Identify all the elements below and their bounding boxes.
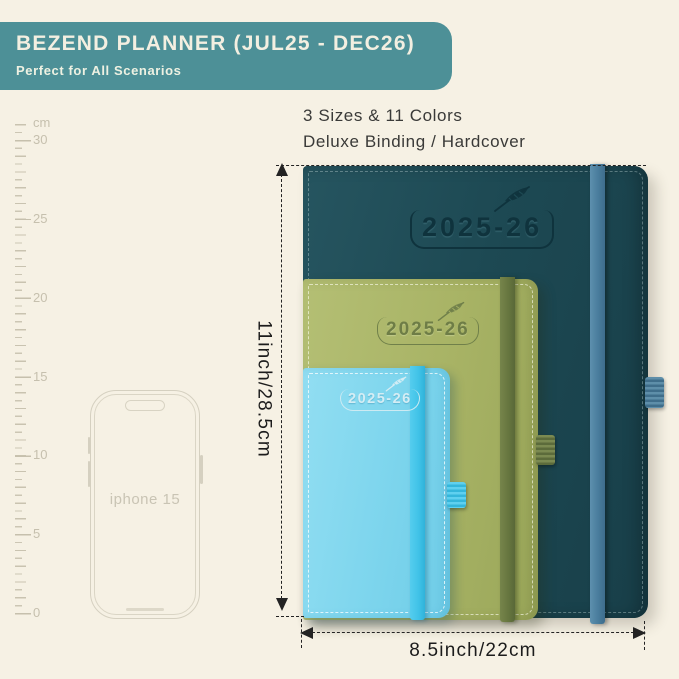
iphone-power-button xyxy=(200,455,203,484)
left-guide-line xyxy=(301,619,302,648)
pen-loop xyxy=(645,377,664,408)
year-label: 2025-26 xyxy=(348,391,412,407)
elastic-band xyxy=(500,277,515,622)
arrow-down-icon xyxy=(276,598,288,611)
ruler-mark-0: 0 xyxy=(33,606,40,620)
iphone-home-bar xyxy=(126,608,164,611)
iphone-volume-button xyxy=(88,437,91,454)
product-subtitle: Perfect for All Scenarios xyxy=(16,63,436,78)
height-dimension-label: 11inch/28.5cm xyxy=(253,308,275,471)
ruler-mark-30: 30 xyxy=(33,133,47,147)
year-logo: 2025-26 xyxy=(340,389,420,411)
pen-loop xyxy=(536,435,555,465)
ruler-mark-10: 10 xyxy=(33,448,47,462)
planner-small: 2025-26 xyxy=(303,368,450,618)
pen-loop xyxy=(447,482,466,508)
ruler-5cm-ticks xyxy=(15,140,31,616)
elastic-band xyxy=(590,164,605,624)
bottom-extension-line xyxy=(276,616,304,617)
top-extension-line xyxy=(276,165,646,166)
feather-icon xyxy=(493,185,531,213)
product-title: BEZEND PLANNER (JUL25 - DEC26) xyxy=(16,32,436,56)
product-infographic: BEZEND PLANNER (JUL25 - DEC26) Perfect f… xyxy=(0,0,679,679)
feature-binding: Deluxe Binding / Hardcover xyxy=(303,132,526,152)
year-label: 2025-26 xyxy=(386,319,470,340)
width-dimension-label: 8.5inch/22cm xyxy=(373,640,573,662)
ruler-mark-25: 25 xyxy=(33,212,47,226)
year-label: 2025-26 xyxy=(422,212,542,242)
year-logo: 2025-26 xyxy=(377,317,479,345)
width-dimension-line xyxy=(307,632,639,633)
header-banner: BEZEND PLANNER (JUL25 - DEC26) Perfect f… xyxy=(0,22,452,90)
iphone-dynamic-island xyxy=(125,400,165,411)
feature-text: 3 Sizes & 11 Colors Deluxe Binding / Har… xyxy=(303,106,526,158)
ruler-unit-label: cm xyxy=(33,116,50,130)
iphone-label: iphone 15 xyxy=(91,491,199,508)
height-dimension-line xyxy=(281,174,282,604)
ruler-mark-20: 20 xyxy=(33,291,47,305)
right-guide-line xyxy=(644,621,645,650)
feature-sizes-colors: 3 Sizes & 11 Colors xyxy=(303,106,526,126)
ruler-mark-5: 5 xyxy=(33,527,40,541)
iphone-outline: iphone 15 xyxy=(90,390,200,619)
ruler-mark-15: 15 xyxy=(33,370,47,384)
iphone-volume-button xyxy=(88,461,91,487)
year-logo: 2025-26 xyxy=(410,210,554,249)
